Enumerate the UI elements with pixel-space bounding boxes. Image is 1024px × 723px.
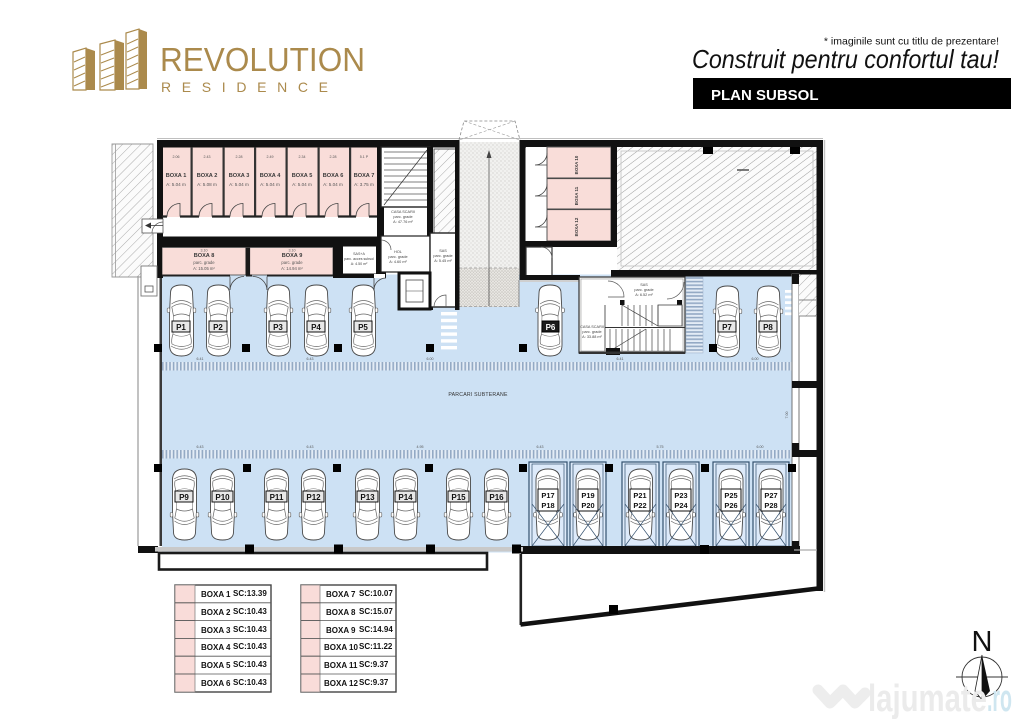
svg-text:parc. grade: parc. grade <box>634 288 653 292</box>
svg-text:BOXA 2: BOXA 2 <box>197 173 218 179</box>
svg-text:P8: P8 <box>763 323 773 332</box>
svg-text:6.41: 6.41 <box>197 357 204 361</box>
svg-text:RESIDENCE: RESIDENCE <box>161 79 328 95</box>
svg-text:BOXA 8: BOXA 8 <box>326 608 356 617</box>
svg-text:parc. grade: parc. grade <box>281 260 303 265</box>
svg-text:A: 47.76 m²: A: 47.76 m² <box>393 220 413 224</box>
svg-text:parc. acces subsol: parc. acces subsol <box>344 257 374 261</box>
svg-text:A: 14.94 m²: A: 14.94 m² <box>281 266 303 271</box>
svg-text:A: 6.52 m²: A: 6.52 m² <box>635 293 653 297</box>
svg-text:SC:14.94: SC:14.94 <box>359 625 393 634</box>
svg-text:A: 4.60 m²: A: 4.60 m² <box>389 260 407 264</box>
svg-text:A: 5.45 m²: A: 5.45 m² <box>434 259 452 263</box>
svg-text:BOXA 4: BOXA 4 <box>260 173 282 179</box>
svg-text:BOXA 5: BOXA 5 <box>201 661 231 670</box>
svg-text:P1: P1 <box>176 323 186 332</box>
svg-text:P25: P25 <box>724 491 737 500</box>
svg-text:SC:10.07: SC:10.07 <box>359 589 393 598</box>
svg-text:A: 5.08 m: A: 5.08 m <box>197 182 217 187</box>
svg-text:P10: P10 <box>215 493 230 502</box>
svg-text:SC:11.22: SC:11.22 <box>359 642 393 651</box>
svg-text:7.00: 7.00 <box>785 412 789 419</box>
svg-text:P7: P7 <box>722 323 732 332</box>
svg-text:HOL: HOL <box>394 250 402 254</box>
svg-text:P21: P21 <box>633 491 646 500</box>
svg-text:A: 3.75 m: A: 3.75 m <box>354 182 374 187</box>
svg-text:BOXA 5: BOXA 5 <box>292 173 313 179</box>
svg-text:5.75: 5.75 <box>657 445 664 449</box>
svg-text:P5: P5 <box>358 323 368 332</box>
svg-text:P26: P26 <box>724 501 737 510</box>
svg-text:5.1 P: 5.1 P <box>360 155 369 159</box>
svg-text:6.00: 6.00 <box>757 445 764 449</box>
svg-text:BOXA 8: BOXA 8 <box>194 253 215 259</box>
svg-text:P2: P2 <box>213 323 223 332</box>
svg-text:SC:15.07: SC:15.07 <box>359 607 393 616</box>
svg-text:parc. grade: parc. grade <box>193 260 215 265</box>
svg-text:N: N <box>972 626 993 658</box>
svg-text:BOXA 7: BOXA 7 <box>326 590 356 599</box>
svg-text:PLAN SUBSOL: PLAN SUBSOL <box>711 87 819 104</box>
svg-text:BOXA 6: BOXA 6 <box>323 173 344 179</box>
svg-text:6.43: 6.43 <box>307 357 314 361</box>
svg-text:BOXA 9: BOXA 9 <box>282 253 303 259</box>
svg-text:A: 5.04 m: A: 5.04 m <box>229 182 249 187</box>
svg-text:BOXA 3: BOXA 3 <box>201 626 231 635</box>
svg-text:Construit pentru confortul tau: Construit pentru confortul tau! <box>692 44 999 74</box>
svg-text:SC:10.43: SC:10.43 <box>233 678 267 687</box>
svg-text:P15: P15 <box>451 493 466 502</box>
svg-text:SC:10.43: SC:10.43 <box>233 660 267 669</box>
svg-text:P11: P11 <box>270 493 284 502</box>
svg-text:BOXA 11: BOXA 11 <box>574 186 579 205</box>
svg-text:A: 5.04 m: A: 5.04 m <box>292 182 312 187</box>
svg-text:A: 5.04 m: A: 5.04 m <box>323 182 343 187</box>
svg-text:SC:10.43: SC:10.43 <box>233 625 267 634</box>
svg-text:P9: P9 <box>179 493 189 502</box>
svg-text:2.43: 2.43 <box>204 155 211 159</box>
svg-text:P16: P16 <box>489 493 504 502</box>
svg-text:6.43: 6.43 <box>307 445 314 449</box>
svg-text:.ro: .ro <box>987 678 1012 720</box>
svg-text:SC:13.39: SC:13.39 <box>233 589 267 598</box>
svg-text:6.41: 6.41 <box>617 357 624 361</box>
svg-text:A: 5.04 m: A: 5.04 m <box>166 182 186 187</box>
svg-text:P6: P6 <box>546 323 556 332</box>
svg-text:6.00: 6.00 <box>427 357 434 361</box>
svg-text:BOXA 12: BOXA 12 <box>574 217 579 236</box>
svg-text:parc. grade: parc. grade <box>393 215 412 219</box>
svg-text:P24: P24 <box>674 501 688 510</box>
svg-text:P3: P3 <box>273 323 283 332</box>
svg-text:parc. grade: parc. grade <box>388 255 407 259</box>
svg-text:lajumate: lajumate <box>868 678 987 720</box>
svg-text:P13: P13 <box>360 493 375 502</box>
svg-text:4.95: 4.95 <box>417 445 424 449</box>
svg-text:2.49: 2.49 <box>267 155 274 159</box>
svg-text:BOXA 1: BOXA 1 <box>201 590 231 599</box>
svg-text:parc. grade: parc. grade <box>582 330 601 334</box>
svg-text:BOXA 11: BOXA 11 <box>324 661 358 670</box>
svg-text:P23: P23 <box>674 491 687 500</box>
svg-text:2.28: 2.28 <box>330 155 337 159</box>
svg-text:A: 4.50 m²: A: 4.50 m² <box>351 262 368 266</box>
svg-text:6.43: 6.43 <box>197 445 204 449</box>
svg-text:BOXA 1: BOXA 1 <box>166 173 187 179</box>
svg-text:BOXA 10: BOXA 10 <box>574 155 579 174</box>
svg-text:BOXA 6: BOXA 6 <box>201 679 231 688</box>
svg-text:SAS: SAS <box>439 249 447 253</box>
svg-text:P18: P18 <box>541 501 554 510</box>
svg-text:P14: P14 <box>398 493 413 502</box>
svg-text:SC:10.43: SC:10.43 <box>233 642 267 651</box>
svg-text:P28: P28 <box>764 501 777 510</box>
svg-text:BOXA 2: BOXA 2 <box>201 608 231 617</box>
svg-text:3.10: 3.10 <box>201 249 208 253</box>
svg-text:A: 33.88 m²: A: 33.88 m² <box>582 335 602 339</box>
svg-text:parc. grade: parc. grade <box>433 254 452 258</box>
svg-text:SAS+A: SAS+A <box>353 252 365 256</box>
svg-text:BOXA 4: BOXA 4 <box>201 643 231 652</box>
svg-text:SC:9.37: SC:9.37 <box>359 660 389 669</box>
svg-text:BOXA 10: BOXA 10 <box>324 643 358 652</box>
svg-text:BOXA 7: BOXA 7 <box>354 173 375 179</box>
svg-text:2.28: 2.28 <box>236 155 243 159</box>
svg-text:P27: P27 <box>764 491 777 500</box>
svg-text:BOXA 9: BOXA 9 <box>326 626 356 635</box>
svg-text:PARCARI SUBTERANE: PARCARI SUBTERANE <box>448 392 508 398</box>
svg-text:CASA SCARII: CASA SCARII <box>391 210 415 214</box>
svg-text:2.34: 2.34 <box>299 155 306 159</box>
svg-text:REVOLUTION: REVOLUTION <box>160 41 365 78</box>
svg-text:P20: P20 <box>581 501 594 510</box>
svg-text:SAS: SAS <box>640 283 648 287</box>
svg-text:P4: P4 <box>311 323 321 332</box>
svg-text:BOXA 12: BOXA 12 <box>324 679 358 688</box>
svg-text:6.00: 6.00 <box>752 357 759 361</box>
svg-text:P17: P17 <box>541 491 554 500</box>
svg-text:2.06: 2.06 <box>173 155 180 159</box>
svg-text:P22: P22 <box>633 501 646 510</box>
svg-text:P12: P12 <box>306 493 321 502</box>
svg-text:BOXA 3: BOXA 3 <box>229 173 250 179</box>
svg-text:6.43: 6.43 <box>537 445 544 449</box>
svg-text:SC:10.43: SC:10.43 <box>233 607 267 616</box>
svg-text:SC:9.37: SC:9.37 <box>359 678 389 687</box>
svg-text:P19: P19 <box>581 491 594 500</box>
svg-text:3.10: 3.10 <box>289 249 296 253</box>
svg-text:A: 5.04 m: A: 5.04 m <box>260 182 280 187</box>
svg-text:A: 15.05 m²: A: 15.05 m² <box>193 266 215 271</box>
svg-text:CASA SCARII: CASA SCARII <box>580 325 604 329</box>
